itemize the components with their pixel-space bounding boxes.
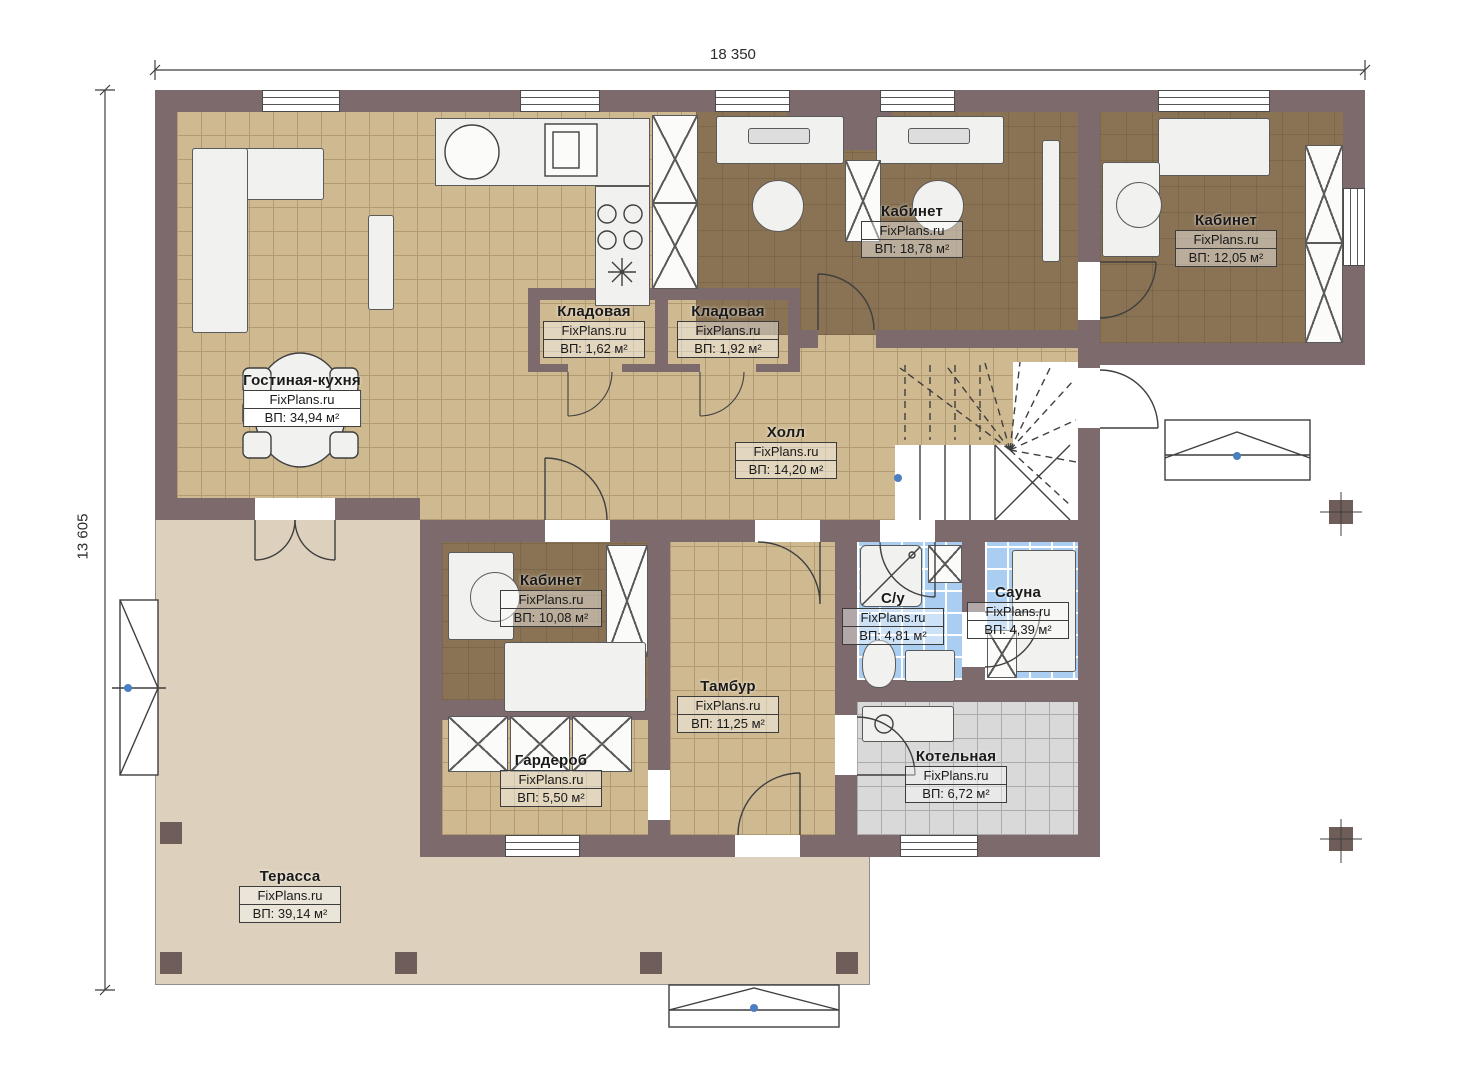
brand-watermark: FixPlans.ru [843,609,943,627]
wall-pantry-left [528,288,540,372]
wall-pantry-bottom-c [756,364,800,372]
wall-pantry-bottom-b [622,364,700,372]
room-label-boiler: Котельная FixPlans.ru ВП: 6,72 м² [905,748,1007,803]
room-name: Кабинет [861,203,963,220]
wall-living-bottom-a [155,498,255,520]
room-name: Кабинет [1175,212,1277,229]
room-label-office-mid: Кабинет FixPlans.ru ВП: 10,08 м² [500,572,602,627]
window [520,90,600,112]
room-label-vestibule: Тамбур FixPlans.ru ВП: 11,25 м² [677,678,779,733]
wall-pantry-mid [655,288,668,372]
room-area: ВП: 18,78 м² [862,240,962,257]
room-label-living-kitchen: Гостиная-кухня FixPlans.ru ВП: 34,94 м² [243,372,361,427]
boiler-unit [862,706,954,742]
bath-cabinet [928,545,962,583]
room-name: Тамбур [677,678,779,695]
wall-vestibule-left-a [648,520,670,770]
room-area: ВП: 39,14 м² [240,905,340,922]
room-area: ВП: 1,92 м² [678,340,778,357]
window [1158,90,1270,112]
wall-pantry-right [788,288,800,372]
porch-post [1329,827,1353,851]
wardrobe [1305,145,1343,243]
room-label-office-top: Кабинет FixPlans.ru ВП: 18,78 м² [861,203,963,258]
kitchen-counter [595,186,650,306]
room-name: Кладовая [677,303,779,320]
terrace-post [640,952,662,974]
kitchen-counter [435,118,650,186]
porch-post [1329,500,1353,524]
wall-hall-bottom-b [610,520,755,542]
room-area: ВП: 34,94 м² [244,409,360,426]
room-name: Котельная [905,748,1007,765]
brand-watermark: FixPlans.ru [501,771,601,789]
door-gap-porch-right [1078,368,1100,428]
wall-vestibule-right-b [835,775,857,857]
room-area: ВП: 12,05 м² [1176,249,1276,266]
wall-bath-sauna-b [962,667,985,680]
brand-watermark: FixPlans.ru [906,767,1006,785]
wall-office-top-bottom-b [876,330,1078,348]
sofa [504,642,646,712]
room-area: ВП: 11,25 м² [678,715,778,732]
room-label-terrace: Терасса FixPlans.ru ВП: 39,14 м² [239,868,341,923]
window [1343,188,1365,266]
room-area: ВП: 14,20 м² [736,461,836,478]
wall-vestibule-left-b [648,820,670,857]
room-area: ВП: 4,81 м² [843,627,943,644]
room-name: Кабинет [500,572,602,589]
kitchen-cabinet [652,203,698,289]
room-label-sauna: Сауна FixPlans.ru ВП: 4,39 м² [967,584,1069,639]
room-area: ВП: 4,39 м² [968,621,1068,638]
wardrobe [1305,243,1343,343]
terrace-post [160,822,182,844]
dimension-left: 13 605 [74,514,91,560]
wall-living-bottom-b [335,498,420,520]
terrace-post [395,952,417,974]
door-gap-terrace [255,498,335,520]
sofa [192,148,248,333]
brand-watermark: FixPlans.ru [678,697,778,715]
wall-office-right-bottom [1078,343,1365,365]
wall-mid-left [420,520,442,857]
room-name: Сауна [967,584,1069,601]
brand-watermark: FixPlans.ru [240,887,340,905]
room-name: Гостиная-кухня [243,372,361,389]
wall-hall-bottom-d [935,520,1078,542]
brand-watermark: FixPlans.ru [968,603,1068,621]
stair-winder [1013,362,1078,520]
office-chair [1116,182,1162,228]
window [900,835,978,857]
wall-hall-bottom-a [420,520,545,542]
brand-watermark: FixPlans.ru [1176,231,1276,249]
wall-exterior-left [155,90,177,520]
room-name: Гардероб [500,752,602,769]
terrace-post [836,952,858,974]
room-name: Холл [735,424,837,441]
room-area: ВП: 5,50 м² [501,789,601,806]
dimension-top: 18 350 [710,46,756,63]
washer [905,650,955,682]
shelf [1042,140,1060,262]
brand-watermark: FixPlans.ru [862,222,962,240]
brand-watermark: FixPlans.ru [678,322,778,340]
room-label-bathroom: С/у FixPlans.ru ВП: 4,81 м² [842,590,944,645]
room-label-wardrobe: Гардероб FixPlans.ru ВП: 5,50 м² [500,752,602,807]
room-name: Кладовая [543,303,645,320]
brand-watermark: FixPlans.ru [501,591,601,609]
room-area: ВП: 10,08 м² [501,609,601,626]
door-gap-office-right [1078,262,1100,320]
monitor [908,128,970,144]
window [505,835,580,857]
room-area: ВП: 1,62 м² [544,340,644,357]
office-chair [752,180,804,232]
wall-office-top-bottom-a [800,330,818,348]
kitchen-cabinet [652,115,698,203]
floor-plan: 18 350 13 605 Гостиная-кухня FixPlans.ru… [0,0,1474,1080]
brand-watermark: FixPlans.ru [736,443,836,461]
wardrobe [448,716,508,772]
wall-spine-right [1078,112,1100,857]
terrace-post [160,952,182,974]
room-label-hall: Холл FixPlans.ru ВП: 14,20 м² [735,424,837,479]
monitor [748,128,810,144]
window [880,90,955,112]
door-gap-entry [735,835,800,857]
brand-watermark: FixPlans.ru [244,391,360,409]
room-label-office-right: Кабинет FixPlans.ru ВП: 12,05 м² [1175,212,1277,267]
room-label-pantry-1: Кладовая FixPlans.ru ВП: 1,62 м² [543,303,645,358]
wardrobe [606,545,648,657]
room-name: Терасса [239,868,341,885]
window [715,90,790,112]
toilet [862,640,896,688]
room-name: С/у [842,590,944,607]
sofa [1158,118,1270,176]
tv-stand [368,215,394,310]
room-label-pantry-2: Кладовая FixPlans.ru ВП: 1,92 м² [677,303,779,358]
window [262,90,340,112]
room-area: ВП: 6,72 м² [906,785,1006,802]
brand-watermark: FixPlans.ru [544,322,644,340]
wall-pantry-bottom-a [528,364,568,372]
